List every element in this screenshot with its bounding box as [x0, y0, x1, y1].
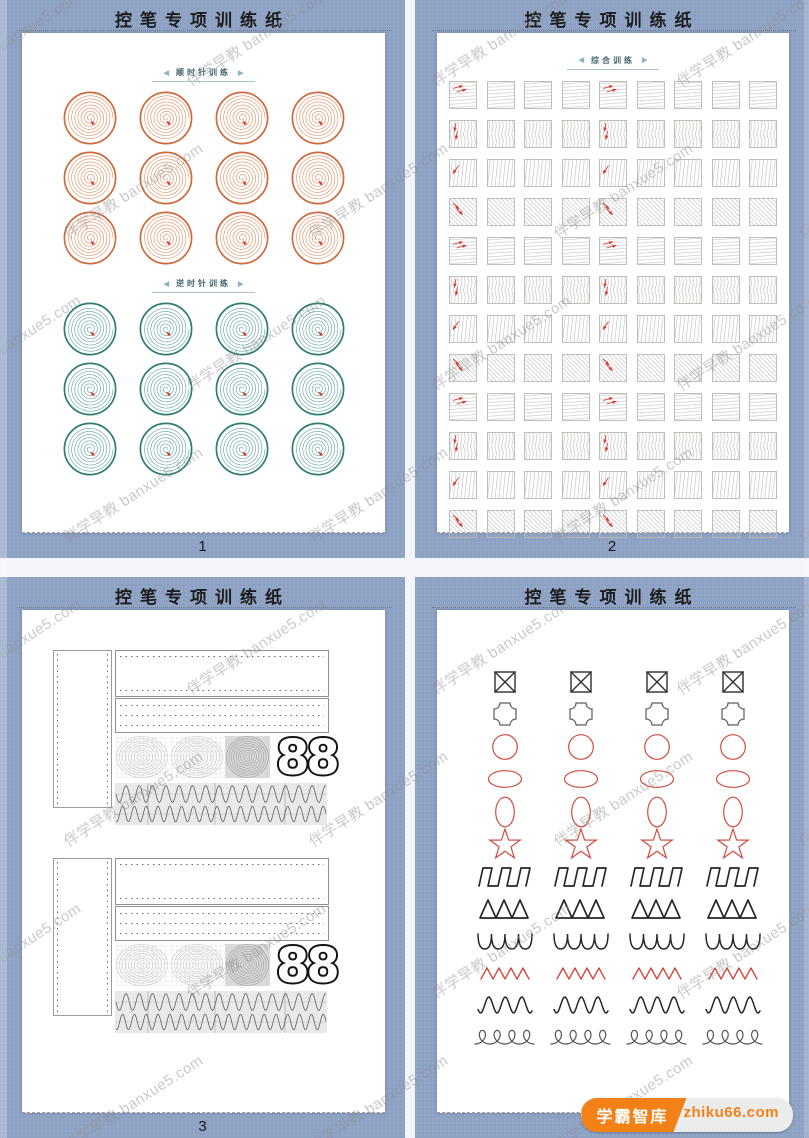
rings-practice-cell	[225, 736, 270, 778]
pattern-drill-cell	[562, 471, 590, 499]
pattern-drill-cell	[524, 432, 552, 460]
pattern-drill-grid	[437, 81, 789, 538]
ellipse-vertical-shape	[645, 795, 669, 829]
pattern-drill-cell	[487, 471, 515, 499]
square-wave-shape	[705, 863, 761, 889]
pattern-drill-cell	[449, 354, 477, 382]
pattern-drill-cell	[599, 159, 627, 187]
pattern-drill-cell	[487, 198, 515, 226]
ellipse-horizontal-shape	[638, 769, 676, 789]
shape-drill-row-square-wave	[467, 860, 771, 892]
page-title: 控笔专项训练纸	[0, 583, 405, 608]
page-number-3: 3	[0, 1118, 405, 1135]
spiral-cell	[63, 151, 117, 205]
zigzag-wave-shape	[631, 962, 683, 984]
pattern-drill-cell	[674, 81, 702, 109]
pattern-drill-cell	[712, 432, 740, 460]
brand-site: zhiku66.com	[677, 1098, 793, 1132]
pattern-drill-cell	[562, 81, 590, 109]
spiral-cell	[215, 302, 269, 356]
pattern-drill-cell	[749, 354, 777, 382]
shape-drill-row-zigzag-wave	[467, 957, 771, 989]
pattern-drill-cell	[637, 393, 665, 421]
pattern-drill-cell	[749, 159, 777, 187]
pattern-drill-cell	[524, 510, 552, 538]
ellipse-horizontal-shape	[486, 769, 524, 789]
brand-badge: 学霸智库 zhiku66.com	[581, 1098, 793, 1132]
pattern-drill-cell	[449, 237, 477, 265]
pattern-drill-cell	[674, 432, 702, 460]
pattern-drill-cell	[449, 120, 477, 148]
rings-practice-strip: 88	[115, 736, 346, 778]
pattern-drill-cell	[637, 81, 665, 109]
title-divider	[17, 30, 392, 31]
pattern-drill-cell	[599, 510, 627, 538]
svg-text:88: 88	[276, 734, 337, 780]
pattern-drill-cell	[487, 393, 515, 421]
star-shape	[639, 827, 675, 861]
worksheet-page-1: ◀ 顺时针训练 ▶ ◀ 逆时针训练 ▶	[22, 33, 385, 533]
triangle-wave-shape	[630, 894, 684, 922]
page-number-2: 2	[415, 538, 809, 555]
pattern-drill-cell	[562, 276, 590, 304]
pattern-drill-cell	[637, 237, 665, 265]
pattern-drill-cell	[562, 120, 590, 148]
pattern-drill-cell	[749, 237, 777, 265]
pattern-drill-cell	[637, 354, 665, 382]
rings-practice-strip: 88	[115, 944, 346, 986]
pattern-drill-cell	[749, 471, 777, 499]
loop-wave-shape	[624, 1024, 690, 1050]
pattern-drill-cell	[487, 159, 515, 187]
shape-drill-row-star	[467, 827, 771, 859]
practice-block-2: 88	[22, 856, 385, 1066]
shape-drill-row-ellipse-vertical	[467, 795, 771, 827]
square-wave-shape	[553, 863, 609, 889]
pattern-drill-cell	[449, 510, 477, 538]
pattern-drill-cell	[712, 315, 740, 343]
page-3-panel: 控笔专项训练纸 88	[0, 577, 405, 1138]
pattern-drill-cell	[562, 354, 590, 382]
page-2-panel: 控笔专项训练纸 ◀ 综合训练 ▶ 2	[415, 0, 809, 558]
pattern-drill-cell	[449, 471, 477, 499]
page-4-panel: 控笔专项训练纸 4	[415, 577, 809, 1138]
spiral-cell	[291, 91, 345, 145]
shape-drill-row-ellipse-horizontal	[467, 763, 771, 795]
section-label-text: 顺时针训练	[176, 67, 231, 78]
pattern-drill-cell	[749, 81, 777, 109]
ellipse-horizontal-shape	[714, 769, 752, 789]
pattern-drill-cell	[674, 198, 702, 226]
spiral-cell	[139, 422, 193, 476]
spiral-cell	[63, 211, 117, 265]
pattern-drill-cell	[674, 276, 702, 304]
pattern-drill-cell	[712, 198, 740, 226]
rings-practice-cell	[115, 944, 169, 986]
left-arrow-icon: ◀	[164, 280, 169, 288]
pattern-drill-cell	[637, 471, 665, 499]
pattern-drill-cell	[449, 432, 477, 460]
worksheet-preview-grid: 控笔专项训练纸 ◀ 顺时针训练 ▶ ◀ 逆时针训练 ▶ 1 控笔专项训练纸	[0, 0, 809, 1138]
pattern-drill-cell	[599, 354, 627, 382]
pattern-drill-cell	[749, 276, 777, 304]
zigzag-wave-shape	[555, 962, 607, 984]
practice-block-1: 88	[22, 648, 385, 858]
spiral-cell	[291, 422, 345, 476]
counterclockwise-spiral-grid	[63, 302, 345, 476]
notched-square-shape	[490, 699, 520, 729]
right-arrow-icon: ▶	[238, 69, 243, 77]
shape-drill-row-boxed-x	[467, 666, 771, 698]
spiral-cell	[139, 362, 193, 416]
page-title: 控笔专项训练纸	[0, 6, 405, 31]
rings-practice-cell	[225, 944, 270, 986]
star-shape	[487, 827, 523, 861]
pattern-drill-cell	[712, 510, 740, 538]
shape-drill-row-circle	[467, 731, 771, 763]
square-wave-shape	[477, 863, 533, 889]
pattern-drill-cell	[712, 354, 740, 382]
pattern-drill-cell	[674, 354, 702, 382]
scallop-wave-shape	[551, 928, 611, 954]
notched-square-shape	[718, 699, 748, 729]
pattern-drill-cell	[712, 159, 740, 187]
right-arrow-icon: ▶	[238, 280, 243, 288]
pattern-drill-cell	[487, 120, 515, 148]
scallop-wave-shape	[703, 928, 763, 954]
title-divider	[432, 30, 796, 31]
rings-practice-cell	[170, 736, 224, 778]
pattern-drill-cell	[487, 510, 515, 538]
spiral-cell	[291, 151, 345, 205]
page-number-1: 1	[0, 538, 405, 555]
pattern-drill-cell	[637, 510, 665, 538]
vertical-practice-box	[53, 858, 112, 1016]
pattern-drill-cell	[524, 315, 552, 343]
pattern-drill-cell	[637, 315, 665, 343]
pattern-drill-cell	[599, 315, 627, 343]
ellipse-horizontal-shape	[562, 769, 600, 789]
spiral-cell	[291, 302, 345, 356]
triangle-wave-shape	[706, 894, 760, 922]
spiral-cell	[215, 362, 269, 416]
spiral-cell	[63, 422, 117, 476]
section-label-text: 综合训练	[591, 55, 635, 66]
pattern-drill-cell	[749, 120, 777, 148]
shape-drill-row-triangle-wave	[467, 892, 771, 924]
zigzag-wave-shape	[707, 962, 759, 984]
shape-drill-row-loop-wave	[467, 1021, 771, 1053]
pattern-drill-cell	[449, 159, 477, 187]
pattern-drill-cell	[599, 276, 627, 304]
practice-number-88: 88	[276, 734, 346, 780]
circle-shape	[642, 732, 672, 762]
ruled-practice-box	[115, 858, 329, 905]
title-divider	[17, 607, 392, 608]
page-title: 控笔专项训练纸	[415, 6, 809, 31]
notched-square-shape	[566, 699, 596, 729]
shape-drill-row-sine-wave	[467, 989, 771, 1021]
section-label-clockwise: ◀ 顺时针训练 ▶	[152, 67, 256, 82]
shape-drill-row-scallop-wave	[467, 924, 771, 956]
pattern-drill-cell	[449, 198, 477, 226]
shape-drill-rows	[467, 666, 771, 1054]
triangle-wave-shape	[478, 894, 532, 922]
ruled-practice-box	[115, 650, 329, 697]
loop-wave-shape	[700, 1024, 766, 1050]
circle-shape	[718, 732, 748, 762]
boxed-x-shape	[492, 669, 518, 695]
section-label-comprehensive: ◀ 综合训练 ▶	[567, 55, 660, 70]
star-shape	[715, 827, 751, 861]
triangle-wave-shape	[554, 894, 608, 922]
spiral-cell	[215, 422, 269, 476]
pattern-drill-cell	[562, 432, 590, 460]
zigzag-wave-shape	[479, 962, 531, 984]
spiral-cell	[139, 151, 193, 205]
pattern-drill-cell	[524, 354, 552, 382]
scallop-wave-shape	[475, 928, 535, 954]
pattern-drill-cell	[674, 120, 702, 148]
pattern-drill-cell	[449, 276, 477, 304]
pattern-drill-cell	[524, 198, 552, 226]
title-divider	[432, 607, 796, 608]
pattern-drill-cell	[599, 120, 627, 148]
pattern-drill-cell	[637, 276, 665, 304]
spiral-cell	[215, 151, 269, 205]
window-edge-right	[804, 0, 809, 1138]
pattern-drill-cell	[487, 354, 515, 382]
worksheet-page-2: ◀ 综合训练 ▶	[437, 33, 789, 533]
sine-wave-shape	[476, 992, 534, 1018]
pattern-drill-cell	[712, 120, 740, 148]
boxed-x-shape	[644, 669, 670, 695]
pattern-drill-cell	[599, 471, 627, 499]
clockwise-spiral-grid	[63, 91, 345, 265]
sine-wave-shape	[704, 992, 762, 1018]
pattern-drill-cell	[637, 198, 665, 226]
pattern-drill-cell	[562, 393, 590, 421]
pattern-drill-cell	[637, 159, 665, 187]
spiral-cell	[291, 211, 345, 265]
pattern-drill-cell	[674, 471, 702, 499]
pattern-drill-cell	[487, 432, 515, 460]
pattern-drill-cell	[712, 393, 740, 421]
spiral-cell	[63, 362, 117, 416]
pattern-drill-cell	[524, 393, 552, 421]
spiral-cell	[215, 211, 269, 265]
pattern-drill-cell	[562, 237, 590, 265]
section-label-counterclockwise: ◀ 逆时针训练 ▶	[152, 278, 256, 293]
boxed-x-shape	[568, 669, 594, 695]
ellipse-vertical-shape	[569, 795, 593, 829]
wave-practice-strip	[115, 783, 327, 825]
right-arrow-icon: ▶	[642, 56, 647, 64]
spiral-cell	[139, 91, 193, 145]
spiral-cell	[139, 211, 193, 265]
pattern-drill-cell	[599, 432, 627, 460]
pattern-drill-cell	[637, 120, 665, 148]
pattern-drill-cell	[524, 471, 552, 499]
pattern-drill-cell	[487, 237, 515, 265]
pattern-drill-cell	[674, 393, 702, 421]
pattern-drill-cell	[712, 81, 740, 109]
loop-wave-shape	[472, 1024, 538, 1050]
pattern-drill-cell	[674, 510, 702, 538]
left-arrow-icon: ◀	[164, 69, 169, 77]
brand-name: 学霸智库	[581, 1098, 686, 1132]
wave-practice-strip	[115, 991, 327, 1033]
pattern-drill-cell	[524, 81, 552, 109]
rings-practice-cell	[115, 736, 169, 778]
shape-drill-row-notched-square	[467, 698, 771, 730]
pattern-drill-cell	[749, 393, 777, 421]
svg-text:88: 88	[276, 942, 337, 988]
circle-shape	[566, 732, 596, 762]
worksheet-page-4	[437, 610, 789, 1113]
pattern-drill-cell	[712, 237, 740, 265]
spiral-cell	[215, 91, 269, 145]
pattern-drill-cell	[749, 510, 777, 538]
dotted-line-box	[115, 698, 329, 733]
pattern-drill-cell	[562, 159, 590, 187]
pattern-drill-cell	[562, 315, 590, 343]
pattern-drill-cell	[674, 159, 702, 187]
practice-number-88: 88	[276, 942, 346, 988]
pattern-drill-cell	[524, 276, 552, 304]
pattern-drill-cell	[599, 81, 627, 109]
page-title: 控笔专项训练纸	[415, 583, 809, 608]
page-1-panel: 控笔专项训练纸 ◀ 顺时针训练 ▶ ◀ 逆时针训练 ▶ 1	[0, 0, 405, 558]
window-edge-left	[0, 0, 7, 1138]
pattern-drill-cell	[524, 237, 552, 265]
vertical-practice-box	[53, 650, 112, 808]
pattern-drill-cell	[674, 315, 702, 343]
square-wave-shape	[629, 863, 685, 889]
ellipse-vertical-shape	[721, 795, 745, 829]
pattern-drill-cell	[599, 198, 627, 226]
spiral-cell	[63, 91, 117, 145]
spiral-cell	[291, 362, 345, 416]
pattern-drill-cell	[487, 81, 515, 109]
rings-practice-cell	[170, 944, 224, 986]
pattern-drill-cell	[487, 315, 515, 343]
pattern-drill-cell	[749, 432, 777, 460]
pattern-drill-cell	[749, 198, 777, 226]
spiral-cell	[139, 302, 193, 356]
left-arrow-icon: ◀	[579, 56, 584, 64]
dotted-line-box	[115, 906, 329, 941]
pattern-drill-cell	[487, 276, 515, 304]
pattern-drill-cell	[449, 315, 477, 343]
pattern-drill-cell	[599, 237, 627, 265]
pattern-drill-cell	[562, 198, 590, 226]
pattern-drill-cell	[599, 393, 627, 421]
pattern-drill-cell	[637, 432, 665, 460]
scallop-wave-shape	[627, 928, 687, 954]
pattern-drill-cell	[712, 471, 740, 499]
pattern-drill-cell	[749, 315, 777, 343]
boxed-x-shape	[720, 669, 746, 695]
spiral-cell	[63, 302, 117, 356]
star-shape	[563, 827, 599, 861]
worksheet-page-3: 88 88	[22, 610, 385, 1113]
sine-wave-shape	[628, 992, 686, 1018]
pattern-drill-cell	[712, 276, 740, 304]
pattern-drill-cell	[449, 393, 477, 421]
section-label-text: 逆时针训练	[176, 278, 231, 289]
loop-wave-shape	[548, 1024, 614, 1050]
pattern-drill-cell	[562, 510, 590, 538]
sine-wave-shape	[552, 992, 610, 1018]
pattern-drill-cell	[674, 237, 702, 265]
notched-square-shape	[642, 699, 672, 729]
circle-shape	[490, 732, 520, 762]
pattern-drill-cell	[524, 159, 552, 187]
ellipse-vertical-shape	[493, 795, 517, 829]
pattern-drill-cell	[524, 120, 552, 148]
pattern-drill-cell	[449, 81, 477, 109]
